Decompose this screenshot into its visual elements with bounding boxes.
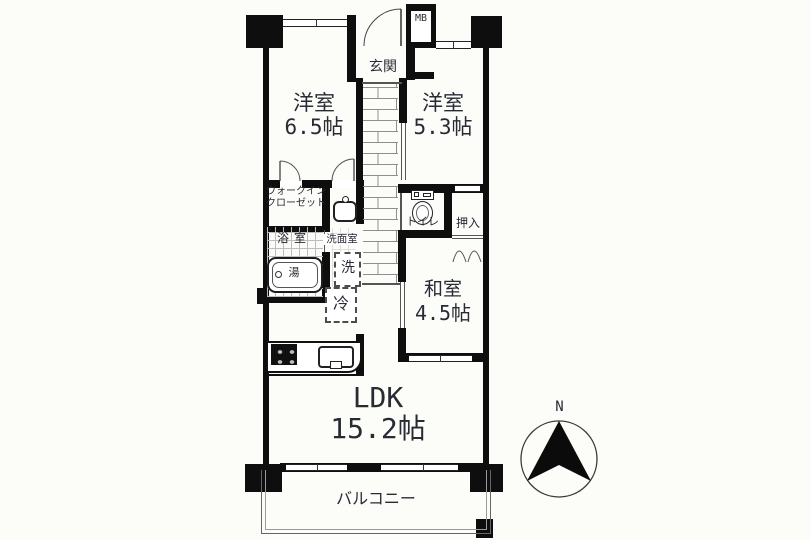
- room-label-bedroom1-name: 洋室: [274, 92, 354, 114]
- meter-box-label: MB: [414, 13, 428, 25]
- room-label-wic-line2: クローゼット: [264, 199, 328, 210]
- room-label-entrance: 玄関: [362, 60, 404, 75]
- room-label-bathroom: 浴室: [269, 232, 319, 245]
- room-label-japanese-size: 4.5帖: [409, 303, 477, 324]
- plan-linework-overlay: [0, 0, 810, 540]
- room-label-ldk-size: 15.2帖: [323, 414, 433, 443]
- room-label-bedroom2-name: 洋室: [403, 92, 483, 114]
- floor-plan: 洋室 6.5帖 洋室 5.3帖 玄関 MB ウォークイン クローゼット 浴室 湯…: [0, 0, 810, 540]
- entrance-door-arc: [364, 9, 401, 46]
- room-label-bedroom1-size: 6.5帖: [274, 116, 354, 138]
- room-label-washroom: 洗面室: [324, 234, 360, 245]
- closet-door-arc: [453, 251, 466, 262]
- north-arrow-icon: [527, 421, 591, 481]
- room-label-toilet: トイレ: [401, 216, 444, 228]
- hall-brick-floor: [363, 84, 398, 283]
- compass-north-label: N: [551, 400, 568, 415]
- closet-door-arc: [468, 251, 481, 262]
- room-label-closet: 押入: [454, 217, 482, 230]
- bathtub-label: 湯: [287, 267, 301, 279]
- room-label-wic-line1: ウォークイン: [264, 187, 328, 198]
- bedroom1-door-arc: [280, 161, 300, 181]
- room-label-ldk-name: LDK: [341, 383, 415, 412]
- room-label-balcony: バルコニー: [328, 491, 424, 508]
- wic-door-arc: [332, 159, 354, 181]
- fridge-label: 冷: [332, 296, 350, 313]
- room-label-japanese-name: 和室: [415, 280, 471, 300]
- room-label-bedroom2-size: 5.3帖: [403, 116, 483, 138]
- washer-label: 洗: [340, 261, 356, 276]
